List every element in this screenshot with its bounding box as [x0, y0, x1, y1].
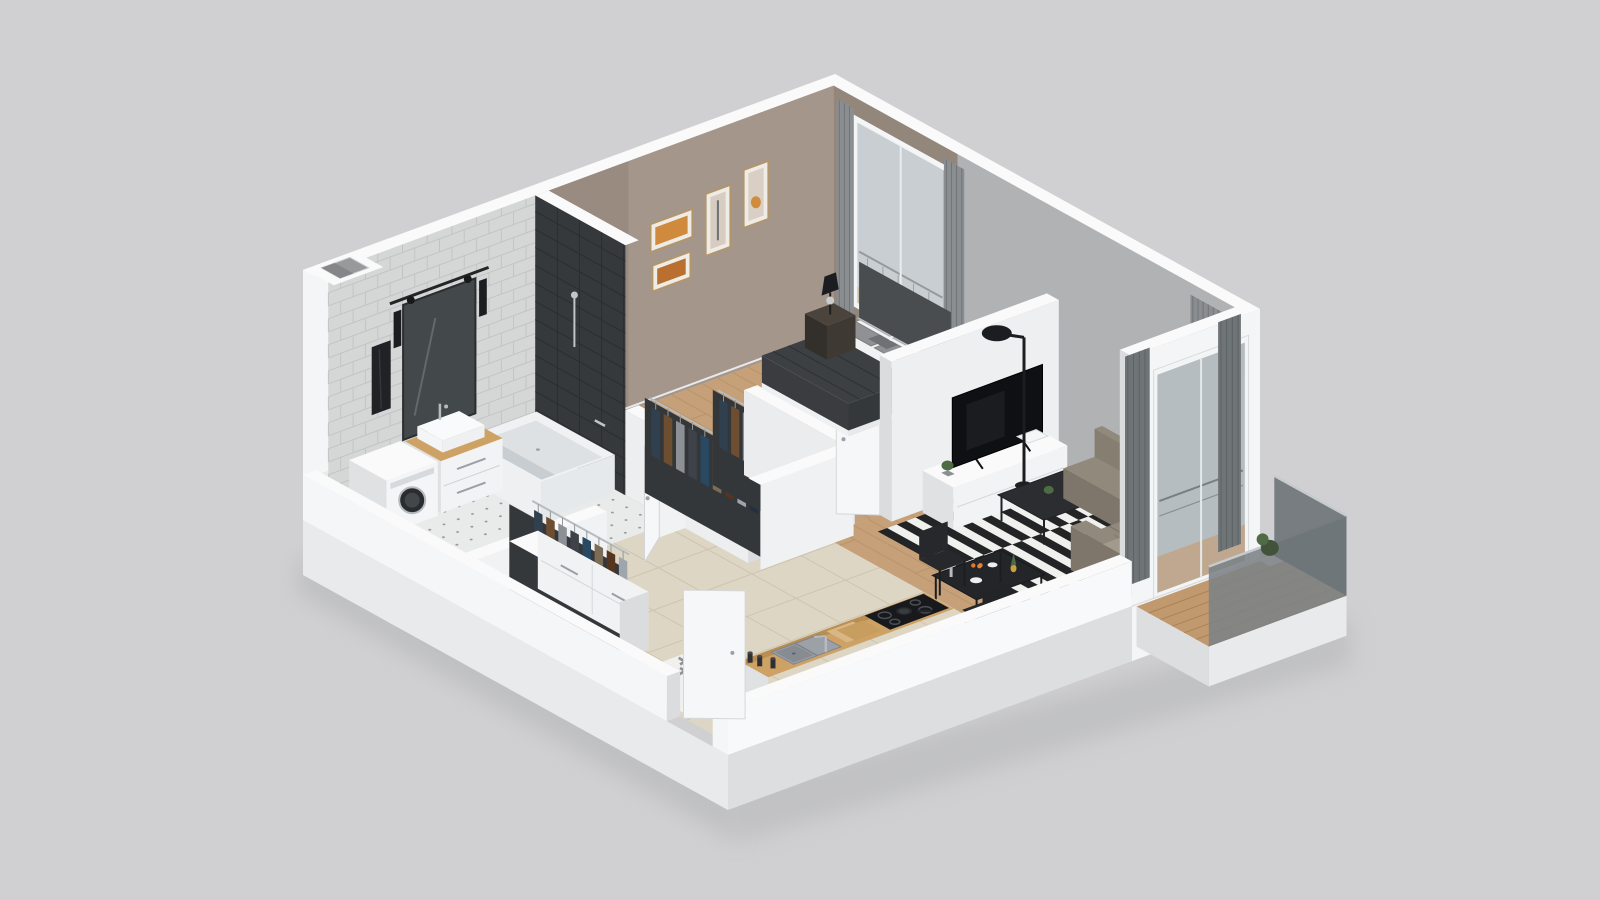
floor-dot: [457, 518, 460, 520]
door-curtain-left: [1125, 348, 1150, 587]
floor-dot: [498, 528, 501, 530]
floor-dot: [500, 503, 503, 505]
console-plant-foliage: [942, 461, 954, 471]
picture-detail: [751, 196, 761, 208]
floor-dot: [610, 537, 613, 539]
hanging-clothes: [664, 414, 673, 467]
floor-dot: [611, 512, 614, 514]
floor-dot: [456, 531, 459, 533]
floor-lamp-shade: [982, 325, 1012, 341]
shower-head: [571, 292, 578, 299]
wall-sconce-icon: [479, 278, 487, 317]
tv-wall-end: [880, 355, 892, 522]
door-handle: [842, 437, 846, 441]
entry-door: [684, 590, 746, 719]
floorplan-3d-render: ❄: [0, 0, 1600, 900]
washer-door-glass: [405, 493, 420, 508]
floor-dot: [442, 536, 445, 538]
floor-dot: [612, 499, 615, 501]
balcony-plant-foliage: [1257, 533, 1269, 545]
sink-faucet-spout: [814, 636, 826, 637]
dinner-plate: [970, 577, 982, 583]
door-curtain-right: [1218, 314, 1241, 552]
floorplan-stage: ❄: [0, 0, 1600, 900]
floor-dot: [597, 504, 600, 506]
floor-dot: [485, 521, 488, 523]
hanging-clothes: [701, 434, 710, 487]
floor-dot: [639, 514, 642, 516]
hanging-clothes: [651, 407, 660, 460]
dinner-plate: [988, 562, 998, 567]
floor-dot: [470, 539, 473, 541]
hanging-clothes: [676, 421, 685, 474]
door-roller: [407, 296, 415, 304]
floor-dot: [499, 515, 502, 517]
entry-door-handle: [730, 651, 734, 655]
frying-pan-inner: [899, 609, 910, 614]
hanging-clothes: [731, 406, 739, 459]
spice-jar-lid: [757, 655, 762, 658]
floor-dot: [471, 513, 474, 515]
floor-dot: [428, 529, 431, 531]
floor-dot: [443, 524, 446, 526]
floor-dot: [470, 526, 473, 528]
floor-dot: [638, 527, 641, 529]
floor-dot: [484, 533, 487, 535]
floor-dot: [625, 506, 628, 508]
hanging-clothes: [688, 428, 697, 481]
floor-dot: [610, 524, 613, 526]
door-handle: [646, 496, 650, 500]
orange-fruit: [971, 563, 975, 567]
floor-dot: [455, 544, 458, 546]
hanging-clothes: [719, 399, 727, 452]
door-roller: [464, 275, 472, 283]
picture-portrait-2-art: [748, 168, 763, 222]
basin-faucet-tip: [444, 405, 448, 409]
lamp-sphere: [826, 297, 834, 305]
bathtub-drain: [536, 448, 540, 450]
floor-dot: [485, 508, 488, 510]
spice-jar-lid: [748, 651, 753, 654]
spice-jar-lid: [771, 657, 776, 660]
floor-dot: [625, 519, 628, 521]
sink-drain: [792, 653, 796, 655]
entry-door-jamb: [667, 671, 680, 721]
floor-dot: [624, 532, 627, 534]
orange-fruit: [977, 564, 981, 568]
wall-sconce-icon: [394, 310, 402, 349]
coffee-table-plant: [1044, 486, 1054, 494]
